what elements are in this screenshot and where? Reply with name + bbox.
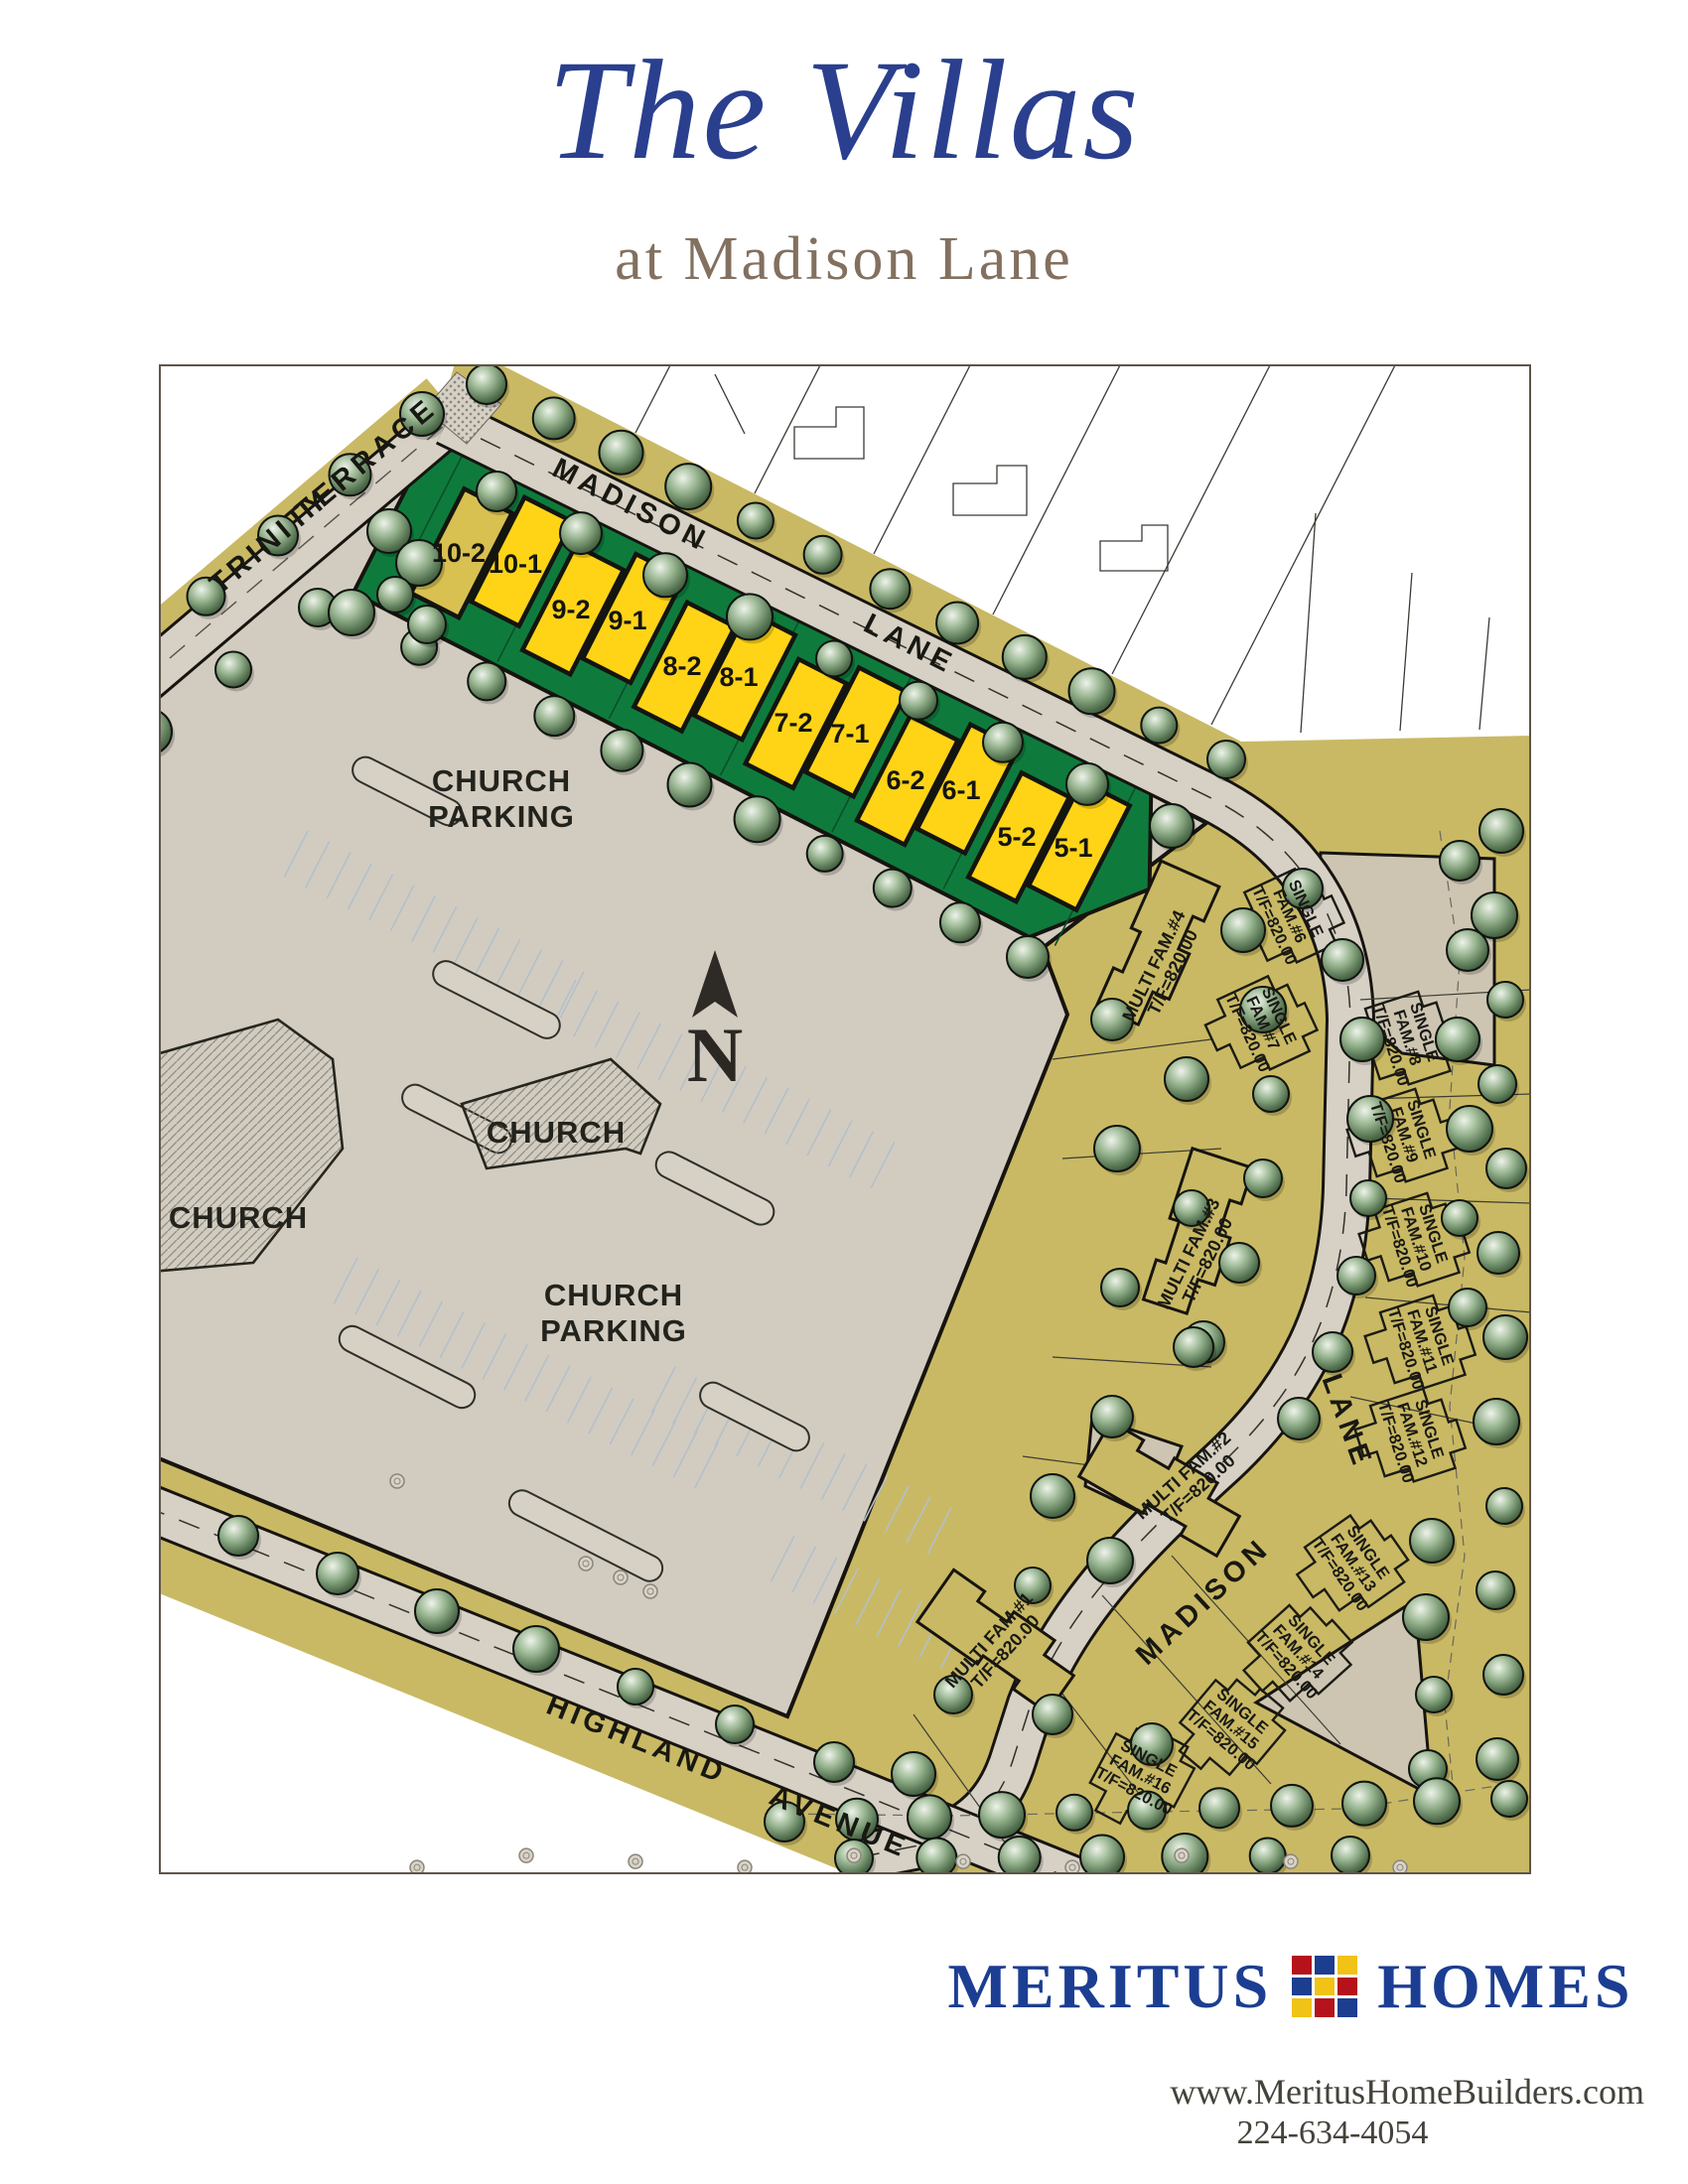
brand-word-homes: HOMES (1377, 1950, 1633, 2023)
svg-text:9-2: 9-2 (551, 595, 590, 624)
church-parking-label-2: CHURCH PARKING (540, 1278, 687, 1348)
svg-text:10-1: 10-1 (489, 549, 542, 579)
svg-text:PARKING: PARKING (540, 1313, 687, 1348)
brand-logo: MERITUS HOMES (914, 1942, 1668, 2031)
flyer-page: The Villas at Madison Lane (0, 0, 1688, 2184)
svg-text:8-2: 8-2 (662, 651, 701, 681)
page-title: The Villas (0, 22, 1688, 201)
svg-text:6-1: 6-1 (941, 775, 980, 805)
site-plan-map: TRINITY TERRACE MADISON LANE MADISON LAN… (159, 364, 1531, 1874)
north-label: N (687, 1012, 743, 1098)
logo-tile (1337, 1978, 1357, 1996)
svg-text:CHURCH: CHURCH (544, 1278, 683, 1312)
svg-text:6-2: 6-2 (886, 765, 924, 795)
svg-text:8-1: 8-1 (719, 662, 758, 692)
logo-tile (1337, 1956, 1357, 1975)
logo-tile (1337, 1998, 1357, 2017)
svg-text:10-2: 10-2 (432, 538, 486, 568)
logo-tile (1315, 1998, 1335, 2017)
logo-tile (1292, 1978, 1312, 1996)
svg-text:PARKING: PARKING (428, 799, 575, 834)
church-parking-label-1: CHURCH PARKING (428, 763, 575, 834)
church-label-left: CHURCH (169, 1200, 308, 1235)
svg-text:7-2: 7-2 (774, 708, 812, 738)
logo-tile (1315, 1956, 1335, 1975)
svg-text:7-1: 7-1 (830, 719, 869, 749)
phone-text: 224-634-4054 (1084, 2115, 1581, 2152)
website-text: www.MeritusHomeBuilders.com (1170, 2071, 1644, 2113)
svg-text:CHURCH: CHURCH (432, 763, 571, 798)
logo-tile (1292, 1998, 1312, 2017)
svg-text:5-1: 5-1 (1054, 833, 1092, 863)
svg-text:5-2: 5-2 (997, 822, 1036, 852)
church-label-center: CHURCH (487, 1115, 626, 1150)
svg-text:9-1: 9-1 (608, 606, 646, 635)
page-subtitle: at Madison Lane (0, 224, 1688, 295)
logo-tile (1315, 1978, 1335, 1996)
meritus-house-icon (1292, 1956, 1357, 2017)
logo-tile (1292, 1956, 1312, 1975)
brand-word-meritus: MERITUS (948, 1950, 1273, 2023)
